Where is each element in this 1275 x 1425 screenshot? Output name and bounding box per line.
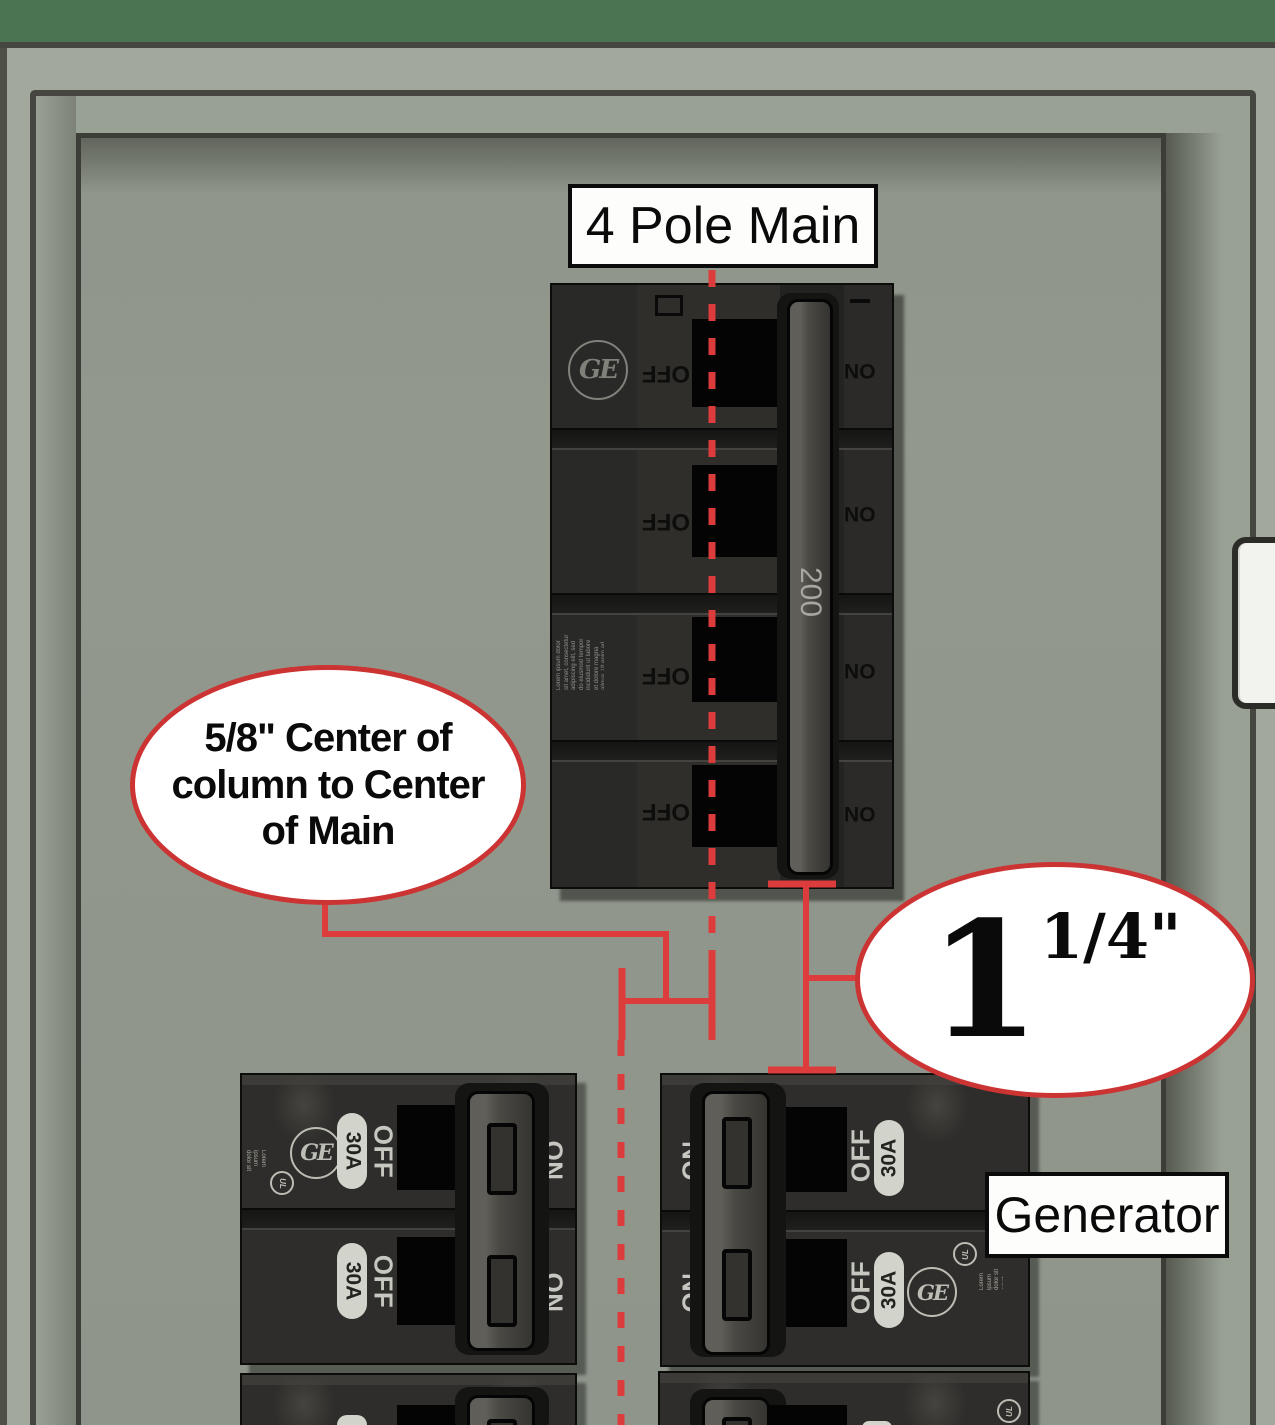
generator-label-box: Generator	[985, 1172, 1229, 1258]
callout-one-quarter: 1 1/4"	[855, 862, 1255, 1098]
main-on-label: ON	[844, 501, 876, 525]
ge-logo: GE	[290, 1127, 342, 1179]
cabinet-left-edge	[0, 48, 7, 1425]
breaker-window	[692, 319, 780, 407]
fine-print: Lorem ipsum dolor sit amet consectetur a…	[979, 1260, 1003, 1290]
main-label-text: 4 Pole Main	[586, 196, 861, 256]
ul-mark: UL	[953, 1242, 977, 1266]
main-on-label: ON	[844, 658, 876, 682]
ge-logo: GE	[907, 1267, 957, 1317]
measurement-whole: 1	[929, 904, 1040, 1056]
breaker-stub-left	[240, 1373, 577, 1425]
pole-groove	[552, 740, 892, 762]
rating-pill: 30A	[877, 1139, 901, 1178]
wall-top-strip	[0, 0, 1275, 42]
top-dash-mark	[850, 299, 870, 303]
rating-pill: 30A	[877, 1271, 901, 1310]
main-on-label: ON	[844, 801, 876, 825]
main-breaker: GE OFF OFF OFF OFF ON ON ON ON Lorem ips…	[550, 283, 894, 889]
off-label: OFF	[846, 1260, 877, 1314]
callout-line-2: column to Center	[172, 762, 485, 809]
handle-slot	[722, 1417, 752, 1425]
ge-logo-text: GE	[300, 1140, 332, 1166]
ul-mark-text: UL	[960, 1249, 969, 1260]
ul-mark-text: UL	[1004, 1406, 1013, 1417]
callout-line-3: of Main	[172, 808, 485, 855]
main-fine-print: Lorem ipsum dolor sit amet, consectetur …	[556, 634, 604, 690]
ge-logo-text: GE	[917, 1280, 947, 1305]
main-off-label: OFF	[642, 797, 690, 825]
generator-label-text: Generator	[994, 1186, 1219, 1244]
breaker-window	[692, 617, 780, 702]
door-latch[interactable]	[1232, 537, 1275, 709]
measurement-fraction: 1/4"	[1040, 906, 1181, 968]
handle-slot	[487, 1123, 517, 1195]
handle-slot	[487, 1419, 517, 1425]
electrical-panel-scene: GE OFF OFF OFF OFF ON ON ON ON Lorem ips…	[0, 0, 1275, 1425]
main-handle-rating: 200	[793, 567, 827, 617]
main-on-label: ON	[844, 358, 876, 382]
ul-mark: UL	[997, 1399, 1021, 1423]
breaker-window	[692, 765, 780, 847]
ul-mark-text: UL	[277, 1178, 286, 1189]
pole-groove	[552, 428, 892, 450]
handle-slot	[487, 1255, 517, 1327]
generator-breaker-right: ON OFF 30A ON OFF 30A GE UL Lorem ipsum …	[660, 1073, 1030, 1367]
off-label: OFF	[368, 1254, 399, 1308]
callout-line-1: 5/8" Center of	[172, 715, 485, 762]
generator-breaker-left: Lorem ipsum dolor sit amet consectetur a…	[240, 1073, 577, 1365]
cabinet-top-edge	[0, 42, 1275, 48]
main-off-label: OFF	[642, 507, 690, 535]
breaker-window	[767, 1405, 847, 1425]
main-label-box: 4 Pole Main	[568, 184, 878, 268]
callout-five-eighths: 5/8" Center of column to Center of Main	[130, 665, 526, 905]
rating-pill: 30A	[340, 1132, 364, 1171]
breaker-window	[692, 465, 780, 557]
off-label: OFF	[368, 1124, 399, 1178]
door-left-shade	[36, 96, 76, 1425]
rating-pill: 30A	[340, 1262, 364, 1301]
mount-hole	[655, 295, 683, 316]
handle-slot	[722, 1249, 752, 1321]
rating-pill-top	[862, 1421, 892, 1425]
fine-print: Lorem ipsum dolor sit amet consectetur a…	[244, 1150, 266, 1176]
main-off-label: OFF	[642, 661, 690, 689]
ul-mark: UL	[270, 1171, 294, 1195]
handle-slot	[722, 1117, 752, 1189]
ge-logo-text: GE	[579, 355, 617, 385]
rating-pill-top	[337, 1415, 367, 1425]
main-off-label: OFF	[642, 359, 690, 387]
off-label: OFF	[846, 1128, 877, 1182]
breaker-stub-right: UL	[658, 1371, 1030, 1425]
ge-logo: GE	[568, 340, 628, 400]
